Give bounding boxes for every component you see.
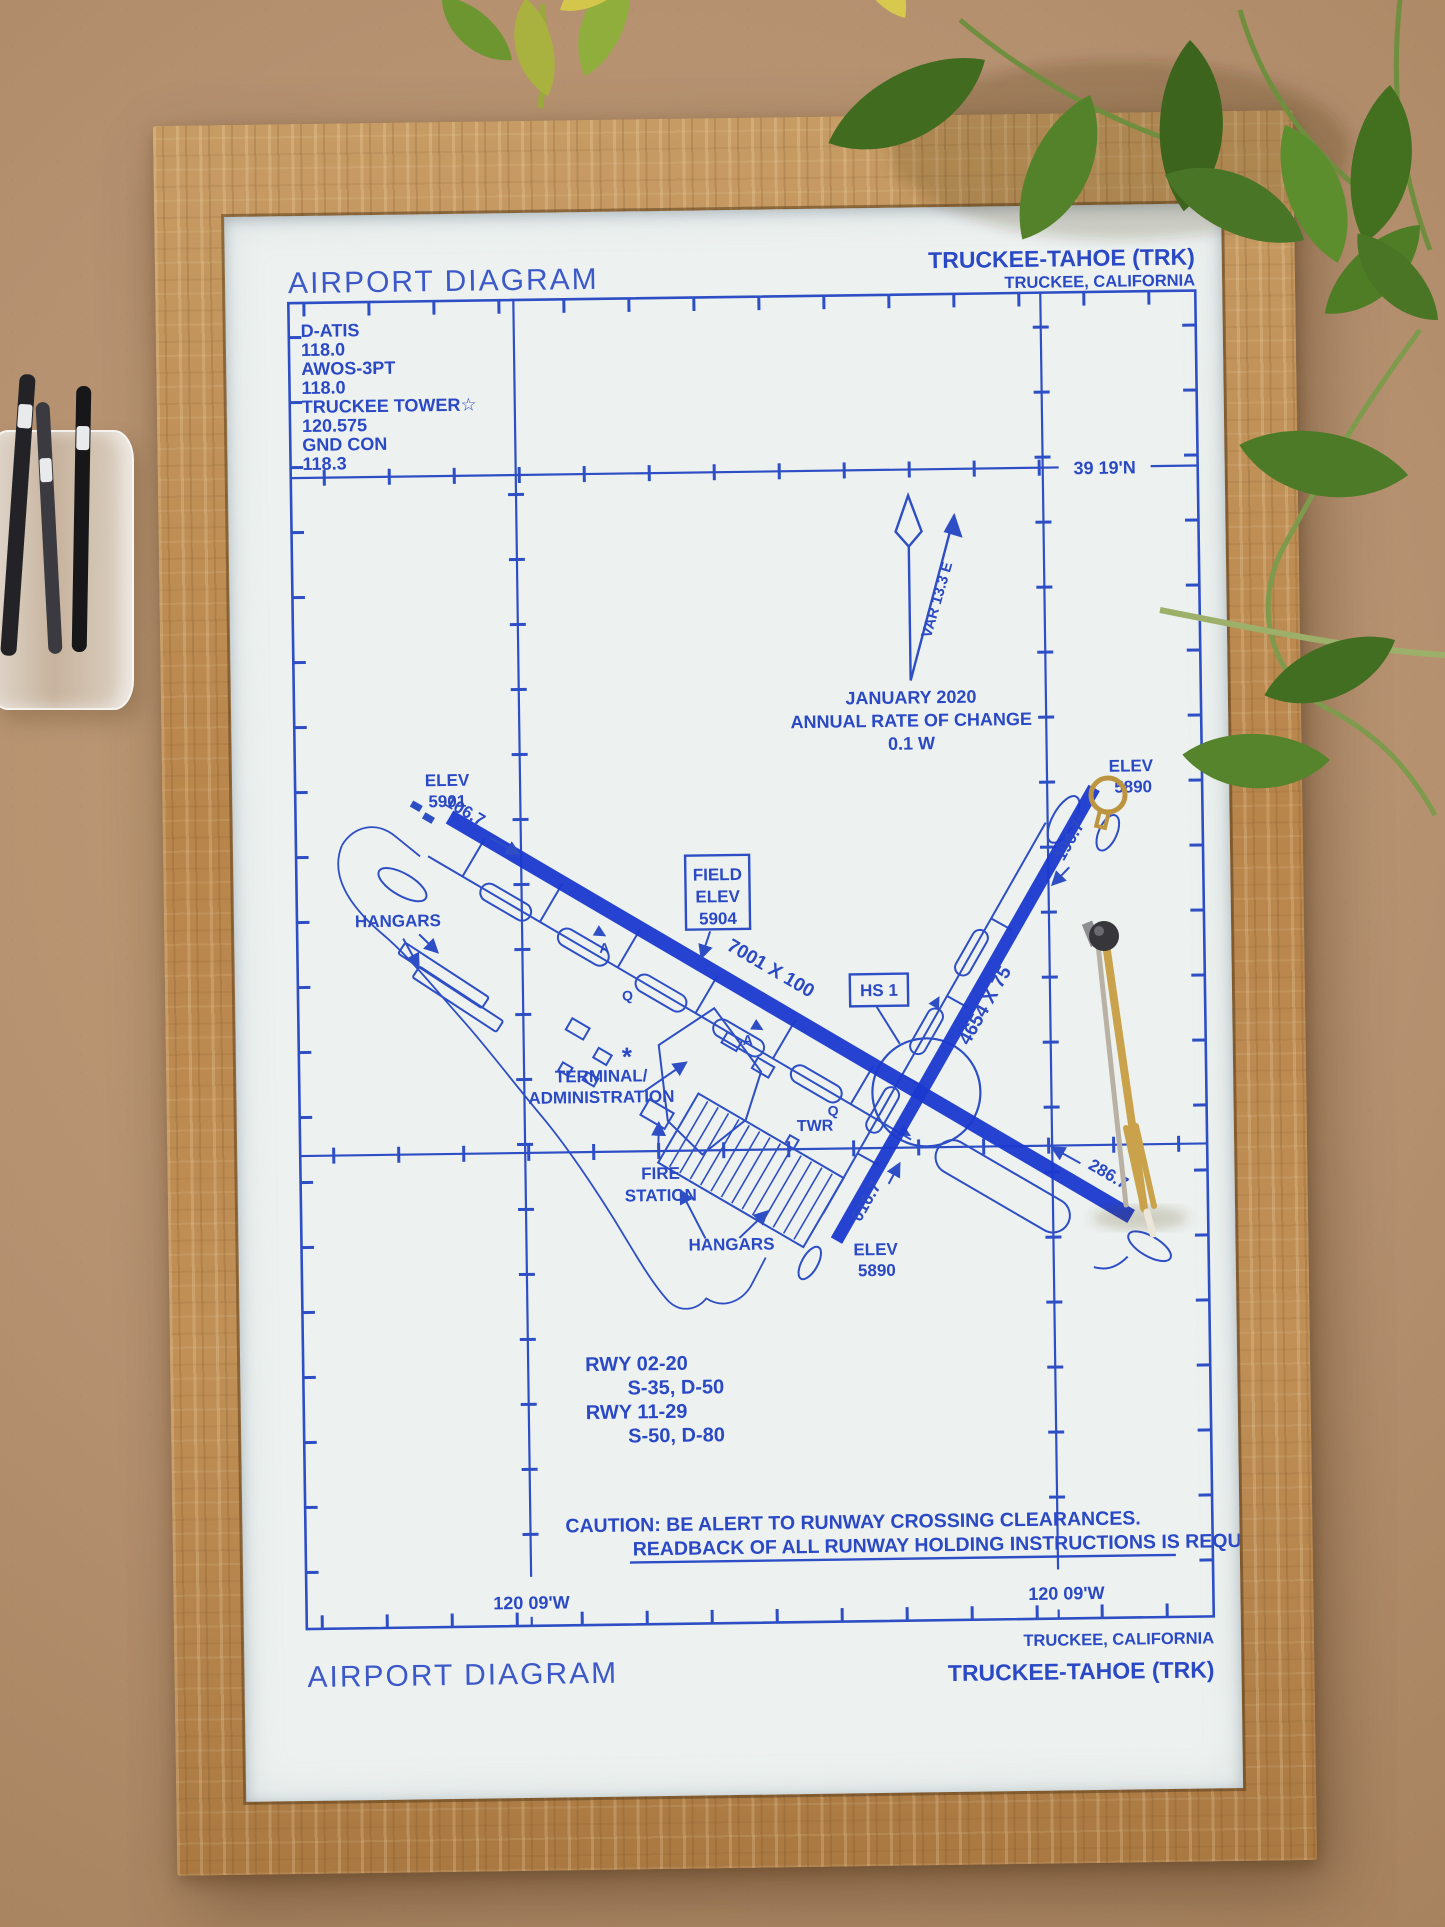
airport-diagram-print: AIRPORT DIAGRAM TRUCKEE-TAHOE (TRK) TRUC…	[224, 203, 1243, 1802]
hangars-left-arrow	[419, 934, 437, 952]
rwy-data-line: RWY 11-29	[586, 1401, 688, 1424]
comm-line: 118.0	[301, 377, 345, 398]
variation-rate-title: ANNUAL RATE OF CHANGE	[790, 709, 1032, 732]
heading-02-arrow	[888, 1164, 899, 1184]
latitude-label: 39 19'N	[1073, 457, 1136, 478]
taxiway-letter: A	[743, 1032, 753, 1048]
pen-label-band	[17, 404, 33, 429]
photo-scene: AIRPORT DIAGRAM TRUCKEE-TAHOE (TRK) TRUC…	[0, 0, 1445, 1927]
fire-station-arrow	[658, 1123, 659, 1153]
hotspot-box: HS 1	[850, 974, 909, 1045]
hangars-bottom-label: HANGARS	[688, 1234, 774, 1254]
taxiway-letter: Q	[622, 987, 633, 1003]
field-elev-value: 5904	[699, 909, 738, 929]
pen	[0, 374, 36, 656]
terminal-building	[658, 1008, 762, 1155]
airport-location-bottom: TRUCKEE, CALIFORNIA	[1023, 1629, 1214, 1650]
glass-cup	[0, 430, 134, 710]
comm-line: 120.575	[302, 415, 367, 436]
taxiway-letter: Q	[828, 1103, 839, 1119]
elev-20-value: 5890	[1114, 777, 1152, 797]
tower-label: TWR	[797, 1118, 834, 1136]
taxiway-letter: A	[599, 940, 609, 956]
hotspot-label: HS 1	[860, 981, 898, 1001]
heading-20-label: 196.7°	[1051, 811, 1092, 863]
page-title-bottom: AIRPORT DIAGRAM	[307, 1657, 618, 1694]
heading-29-arrow	[1052, 1147, 1080, 1163]
variation-label: VAR 13.3 E	[918, 560, 956, 640]
comm-line: GND CON	[302, 434, 387, 455]
pen-label-band	[76, 426, 89, 450]
pen	[35, 402, 62, 654]
comm-line: 118.3	[302, 453, 346, 474]
terminal-label: ADMINISTRATION	[528, 1087, 674, 1108]
pen	[72, 386, 92, 652]
rwy-data-line: S-35, D-50	[627, 1376, 724, 1399]
elev-02-value: 5890	[858, 1261, 896, 1281]
comm-frequency-box: D-ATIS 118.0 AWOS-3PT 118.0 TRUCKEE TOWE…	[301, 319, 478, 474]
rwy-data-line: RWY 02-20	[585, 1353, 688, 1376]
longitude-label-right: 120 09'W	[1028, 1583, 1105, 1604]
hangars-left-label: HANGARS	[355, 911, 441, 931]
rwy-data-line: S-50, D-80	[628, 1424, 725, 1447]
comm-line: D-ATIS	[301, 320, 360, 341]
page-title-top: AIRPORT DIAGRAM	[288, 263, 599, 300]
elev-02: ELEV	[853, 1240, 898, 1260]
elev-11-value: 5901	[428, 792, 466, 812]
hangar-row-block	[658, 1094, 843, 1248]
airport-location-top: TRUCKEE, CALIFORNIA	[1004, 272, 1195, 293]
field-elev-line: FIELD	[693, 865, 742, 885]
terminal-label: TERMINAL/	[555, 1066, 648, 1086]
oak-picture-frame: AIRPORT DIAGRAM TRUCKEE-TAHOE (TRK) TRUC…	[153, 110, 1317, 1876]
comm-line: AWOS-3PT	[301, 358, 395, 379]
runway-data-text: RWY 02-20 S-35, D-50 RWY 11-29 S-50, D-8…	[585, 1352, 725, 1448]
variation-rate-value: 0.1 W	[888, 733, 935, 754]
comm-line: 118.0	[301, 339, 345, 360]
elev-11: ELEV	[425, 771, 470, 791]
airport-name-top: TRUCKEE-TAHOE (TRK)	[928, 244, 1195, 274]
north-variation-arrows: VAR 13.3 E JANUARY 2020 ANNUAL RATE OF C…	[787, 494, 1032, 755]
field-elev-line: ELEV	[695, 887, 740, 907]
elev-20: ELEV	[1109, 756, 1154, 776]
plant-top-center	[429, 0, 646, 108]
airport-name-bottom: TRUCKEE-TAHOE (TRK)	[948, 1656, 1215, 1686]
pen-label-band	[39, 458, 52, 483]
fire-station-label: FIRE	[641, 1164, 680, 1184]
variation-date: JANUARY 2020	[845, 687, 976, 709]
longitude-label-left: 120 09'W	[493, 1592, 570, 1613]
comm-line: TRUCKEE TOWER☆	[302, 395, 477, 417]
letterpress-paper: AIRPORT DIAGRAM TRUCKEE-TAHOE (TRK) TRUC…	[224, 203, 1243, 1802]
caution-note: CAUTION: BE ALERT TO RUNWAY CROSSING CLE…	[565, 1505, 1243, 1563]
